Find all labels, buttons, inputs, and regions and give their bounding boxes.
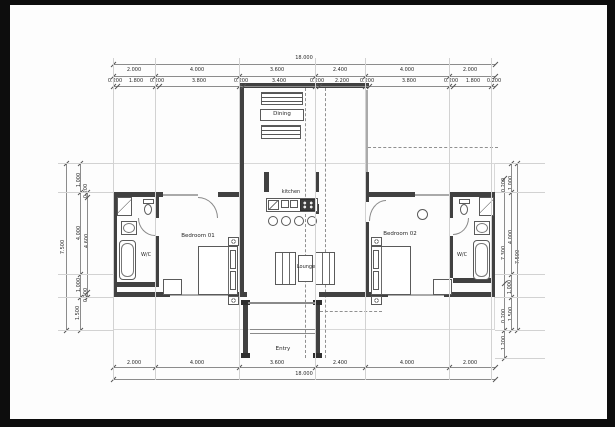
wall [113, 292, 170, 297]
grid-line [155, 58, 156, 380]
room-label-bedroom1: Bedroom 01 [173, 233, 223, 240]
room-label-entry: Entry [263, 346, 303, 353]
shower [117, 197, 132, 216]
grid-line [58, 192, 113, 193]
dimension-line [66, 163, 67, 330]
grid-line [365, 58, 366, 380]
window [415, 194, 449, 196]
wall [243, 300, 248, 358]
center-line [368, 147, 498, 148]
nightstand [371, 296, 382, 305]
grid-line [58, 297, 113, 298]
drawing-sheet: Dining kitchen Lounge Entry Bedroom 01 B… [10, 5, 607, 419]
dim-label: 2.400 [328, 360, 352, 366]
grid-line [495, 192, 545, 193]
dim-label: 1.800 [464, 78, 482, 84]
dimension-line [113, 64, 495, 65]
grid-line [495, 274, 545, 275]
dim-label: 4.000 [185, 360, 209, 366]
room-label-dining: Dining [262, 111, 302, 118]
grid-line [495, 163, 545, 164]
dim-label: 1.000 [76, 168, 82, 192]
dimension-line [87, 192, 88, 297]
kitchen-sink [281, 200, 289, 208]
center-line [305, 88, 306, 358]
dimension-line [113, 379, 495, 380]
dim-label: 3.800 [400, 78, 418, 84]
grid-line [495, 330, 545, 331]
dim-label: 2.000 [458, 360, 482, 366]
kitchen-sink [290, 200, 298, 208]
dimension-line [113, 367, 495, 368]
wall-pier [264, 172, 269, 192]
grid-line [58, 163, 113, 164]
center-line [320, 311, 382, 312]
chair [417, 209, 428, 220]
dim-label: 7.500 [515, 245, 521, 269]
dimension-line [517, 163, 518, 330]
pillow [230, 250, 236, 269]
grid-line [491, 58, 492, 380]
closet [163, 279, 182, 295]
bed-line [228, 247, 229, 294]
bar-stool [281, 216, 291, 226]
dim-label: 2.200 [333, 78, 351, 84]
grid-line [315, 58, 316, 380]
room-label-wc-left: W/C [131, 252, 161, 259]
grid-line [113, 58, 114, 380]
dim-label: 3.600 [265, 67, 289, 73]
nightstand [228, 237, 239, 246]
room-label-bedroom2: Bedroom 02 [375, 231, 425, 238]
dim-label: 3.600 [265, 360, 289, 366]
dimension-tick [492, 62, 498, 68]
wall-cap [241, 353, 250, 358]
dimension-line [511, 163, 512, 330]
room-label-wc-right: W/C [447, 252, 477, 259]
room-label-kitchen: kitchen [271, 189, 311, 196]
dim-label: 4.000 [395, 67, 419, 73]
kitchen-cabinet [268, 200, 279, 210]
dining-table [261, 92, 303, 105]
window [163, 194, 198, 196]
pillow [373, 271, 379, 290]
grid-line [58, 274, 113, 275]
nightstand [371, 237, 382, 246]
screenshot-frame: Dining kitchen Lounge Entry Bedroom 01 B… [0, 0, 615, 427]
toilet [143, 199, 154, 216]
dim-label: 3.800 [190, 78, 208, 84]
bathtub [473, 240, 490, 280]
dim-label: 2.000 [122, 360, 146, 366]
bar-stool [268, 216, 278, 226]
pillow [373, 250, 379, 269]
dimension-tick [492, 377, 498, 383]
bar-stool [294, 216, 304, 226]
dimension-line [113, 86, 495, 87]
dim-label: 4.000 [185, 67, 209, 73]
stove [300, 199, 316, 211]
grid-line [58, 330, 113, 331]
dim-label: 4.000 [395, 360, 419, 366]
entry-step [250, 329, 315, 330]
grid-line [239, 58, 240, 380]
center-line [325, 88, 326, 358]
wall [369, 192, 415, 197]
grid-line [495, 297, 545, 298]
bed-line [381, 247, 382, 294]
toilet [459, 199, 470, 216]
room-label-lounge: Lounge [286, 264, 326, 271]
dim-label: 1.800 [127, 78, 145, 84]
dim-label: 2.400 [328, 67, 352, 73]
floor-plan: Dining kitchen Lounge Entry Bedroom 01 B… [10, 5, 607, 419]
dim-label: 3.400 [270, 78, 288, 84]
dining-table [261, 125, 301, 139]
entry-step [250, 333, 315, 334]
entry-door-track [248, 302, 315, 304]
wash-basin [474, 221, 490, 235]
grid-line [449, 58, 450, 380]
window [366, 90, 368, 172]
pillow [230, 271, 236, 290]
dimension-tick [492, 365, 498, 371]
bathtub [119, 240, 136, 280]
grid-line [495, 358, 545, 359]
dimension-line [80, 163, 81, 330]
dim-label: 4.000 [76, 221, 82, 245]
nightstand [228, 296, 239, 305]
dim-label: 2.000 [122, 67, 146, 73]
dimension-line [113, 76, 495, 77]
dim-label: 2.000 [458, 67, 482, 73]
wall [117, 282, 157, 287]
wash-basin [121, 221, 137, 235]
